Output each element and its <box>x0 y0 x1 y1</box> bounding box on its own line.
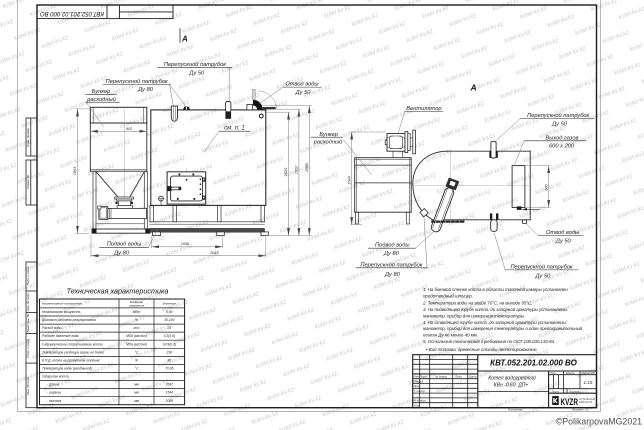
svg-text:- ширина: - ширина <box>47 391 61 395</box>
svg-text:Перепускной патрубок: Перепускной патрубок <box>164 61 226 68</box>
svg-text:Т. контр.: Т. контр. <box>414 389 426 393</box>
svg-text:Номинальная мощность: Номинальная мощность <box>42 310 81 314</box>
svg-text:1825: 1825 <box>284 167 288 176</box>
svg-text:Техническая характеристика: Техническая характеристика <box>67 287 169 296</box>
svg-text:1863: 1863 <box>73 166 77 175</box>
svg-text:2. Температура воды на входе: 2. Температура воды на входе 70°С, на вы… <box>422 300 532 305</box>
svg-text:Масштаб: Масштаб <box>582 371 595 375</box>
svg-text:Перепускной патрубок: Перепускной патрубок <box>510 263 572 270</box>
svg-text:%: % <box>135 318 138 322</box>
svg-text:Отвод воды: Отвод воды <box>546 230 580 236</box>
svg-text:КОТЕЛЬНЫЙ: КОТЕЛЬНЫЙ <box>579 397 595 401</box>
svg-text:Перв. примен.: Перв. примен. <box>26 127 30 147</box>
svg-text:КВТ.052.201.02.000 ВО: КВТ.052.201.02.000 ВО <box>40 10 104 16</box>
svg-text:Ду 80: Ду 80 <box>113 250 130 256</box>
svg-text:1544: 1544 <box>166 391 174 395</box>
svg-text:Лист: Лист <box>551 389 560 393</box>
svg-text:мм: мм <box>134 383 139 387</box>
svg-text:К.П.Д. котла на проектном топл: К.П.Д. котла на проектном топливе <box>42 358 100 362</box>
svg-text:Ду 80: Ду 80 <box>383 251 400 257</box>
svg-text:1:15: 1:15 <box>584 380 593 385</box>
svg-text:1. На боковой стенке котла в: 1. На боковой стенке котла в области топ… <box>423 286 568 292</box>
svg-text:Лит.: Лит. <box>549 371 557 375</box>
svg-text:230: 230 <box>166 350 173 354</box>
svg-text:2642: 2642 <box>165 383 174 387</box>
svg-text:- Длина: - Длина <box>47 383 59 387</box>
svg-text:1920: 1920 <box>295 165 299 174</box>
svg-text:Подп. и дата: Подп. и дата <box>26 266 30 285</box>
svg-text:Бункер: Бункер <box>319 132 338 138</box>
svg-text:Ду 80: Ду 80 <box>384 272 401 278</box>
svg-text:600 х 200: 600 х 200 <box>549 144 575 150</box>
svg-text:Температура уходящих газов, не: Температура уходящих газов, не более <box>42 350 104 354</box>
svg-text:Н. контр.: Н. контр. <box>414 399 427 403</box>
svg-text:расходный: расходный <box>86 96 116 103</box>
svg-text:Расход воды: Расход воды <box>42 326 62 330</box>
svg-text:%: % <box>135 358 138 362</box>
svg-text:мм: мм <box>134 399 139 403</box>
svg-text:1544: 1544 <box>347 176 351 184</box>
svg-text:КВТ.052.201.02.000 ВО: КВТ.052.201.02.000 ВО <box>490 359 577 368</box>
svg-text:Дата: Дата <box>468 375 477 379</box>
svg-text:Разраб.: Разраб. <box>414 379 424 383</box>
svg-text:Выход газов: Выход газов <box>545 135 578 141</box>
svg-text:Листов 1: Листов 1 <box>568 389 582 393</box>
svg-text:Утв.: Утв. <box>414 403 421 407</box>
svg-text:• Вид топлива: древесные от: • Вид топлива: древесные отходы пеллетир… <box>426 347 538 352</box>
svg-text:Ду 50: Ду 50 <box>295 90 312 96</box>
svg-text:Ду 50: Ду 50 <box>551 121 568 127</box>
svg-text:4. На отводящей трубе котла ,: 4. На отводящей трубе котла ,до запорной… <box>423 319 568 325</box>
svg-text:- высота: - высота <box>47 399 61 403</box>
svg-text:Пров.: Пров. <box>414 384 422 388</box>
svg-text:Наименование показателя: Наименование показателя <box>42 302 82 306</box>
svg-text:Перепускной патрубок: Перепускной патрубок <box>360 261 422 268</box>
svg-text:Подвод воды: Подвод воды <box>107 242 142 248</box>
svg-text:Котел водогрейный: Котел водогрейный <box>488 375 536 382</box>
svg-text:30-100: 30-100 <box>164 318 174 322</box>
svg-text:0,3(3,0): 0,3(3,0) <box>164 334 175 338</box>
svg-text:ЗАВОД РФ: ЗАВОД РФ <box>579 400 592 404</box>
svg-text:Масса: Масса <box>566 371 575 375</box>
svg-text:°С: °С <box>135 350 139 354</box>
svg-text:МВт: МВт <box>133 310 141 314</box>
svg-text:Подп. и дата: Подп. и дата <box>26 339 30 358</box>
svg-text:600: 600 <box>544 183 548 190</box>
svg-text:Изм Лист: Изм Лист <box>414 375 428 379</box>
svg-text:1698: 1698 <box>181 242 190 246</box>
svg-text:Взам. инв. №: Взам. инв. № <box>26 313 30 332</box>
svg-text:Перепускной патрубок: Перепускной патрубок <box>527 112 589 119</box>
svg-text:80: 80 <box>167 358 171 362</box>
svg-text:Инв. № подл.: Инв. № подл. <box>26 376 30 395</box>
svg-text:Значение: Значение <box>163 302 177 306</box>
svg-text:KVZR: KVZR <box>561 397 579 408</box>
svg-text:клапан Ду не менее 40 мм.: клапан Ду не менее 40 мм. <box>423 333 478 338</box>
svg-text:°С: °С <box>135 367 139 371</box>
svg-text:Подп.: Подп. <box>455 375 463 379</box>
svg-text:А: А <box>181 35 188 44</box>
svg-text:21: 21 <box>166 326 171 330</box>
svg-text:мм: мм <box>134 391 139 395</box>
svg-text:Температура воды (вход/выход): Температура воды (вход/выход) <box>42 367 92 371</box>
svg-text:МПа (кгс/см²): МПа (кгс/см²) <box>126 342 147 346</box>
svg-text:Диапазон рабочего регулировани: Диапазон рабочего регулирования <box>41 318 96 322</box>
svg-text:Копировал: Копировал <box>508 408 523 412</box>
svg-text:2088: 2088 <box>305 162 309 172</box>
svg-text:Ду 50: Ду 50 <box>555 238 572 244</box>
svg-text:см. п. 1: см. п. 1 <box>224 126 244 132</box>
svg-text:№ докум.: № докум. <box>435 375 448 379</box>
svg-text:3. На подводящей трубе котла,: 3. На подводящей трубе котла, до запорно… <box>423 306 569 312</box>
svg-text:Ду 50: Ду 50 <box>534 274 551 280</box>
svg-text:0,03(0,3): 0,03(0,3) <box>163 342 176 346</box>
svg-text:Ду 50: Ду 50 <box>188 70 205 76</box>
svg-text:расходный: расходный <box>313 139 343 146</box>
svg-text:©PolikarpovaMG2021: ©PolikarpovaMG2021 <box>556 416 642 426</box>
svg-text:Гидравлическое сопротивление к: Гидравлическое сопротивление котла <box>42 342 103 346</box>
svg-text:5. Остальные технические треб: 5. Остальные технические требования по О… <box>423 339 555 344</box>
svg-text:Рабочее давление воды: Рабочее давление воды <box>42 334 80 338</box>
svg-text:2643: 2643 <box>209 251 219 255</box>
svg-text:Бункер: Бункер <box>92 89 111 95</box>
svg-text:902: 902 <box>126 127 133 131</box>
svg-text:Отвод воды: Отвод воды <box>285 82 319 88</box>
svg-text:2088: 2088 <box>165 399 174 403</box>
svg-text:МПа (кгс/см²): МПа (кгс/см²) <box>126 334 147 338</box>
svg-text:м³/ч: м³/ч <box>134 326 140 330</box>
svg-text:А: А <box>470 83 477 93</box>
svg-text:Справ. №: Справ. № <box>26 174 30 188</box>
svg-text:Подвод воды: Подвод воды <box>375 243 410 249</box>
svg-text:Габариты котла: Габариты котла <box>42 375 69 379</box>
svg-text:манометр, прибор для измерени: манометр, прибор для измерения температу… <box>423 313 525 318</box>
svg-text:КВн -0,60. ДП+: КВн -0,60. ДП+ <box>494 383 529 389</box>
svg-text:Ду 80: Ду 80 <box>137 87 154 93</box>
svg-text:Формат А2: Формат А2 <box>572 408 589 412</box>
svg-text:продотводный штуцер.: продотводный штуцер. <box>423 293 473 299</box>
svg-text:измерения: измерения <box>129 304 145 308</box>
svg-text:манометр, прибор для измерени: манометр, прибор для измерения температу… <box>423 325 583 331</box>
svg-text:Перепускной патрубок: Перепускной патрубок <box>106 78 168 85</box>
svg-text:70-95: 70-95 <box>165 367 174 371</box>
svg-text:0,60: 0,60 <box>166 310 173 314</box>
svg-text:Инв. № дубл.: Инв. № дубл. <box>26 292 30 311</box>
